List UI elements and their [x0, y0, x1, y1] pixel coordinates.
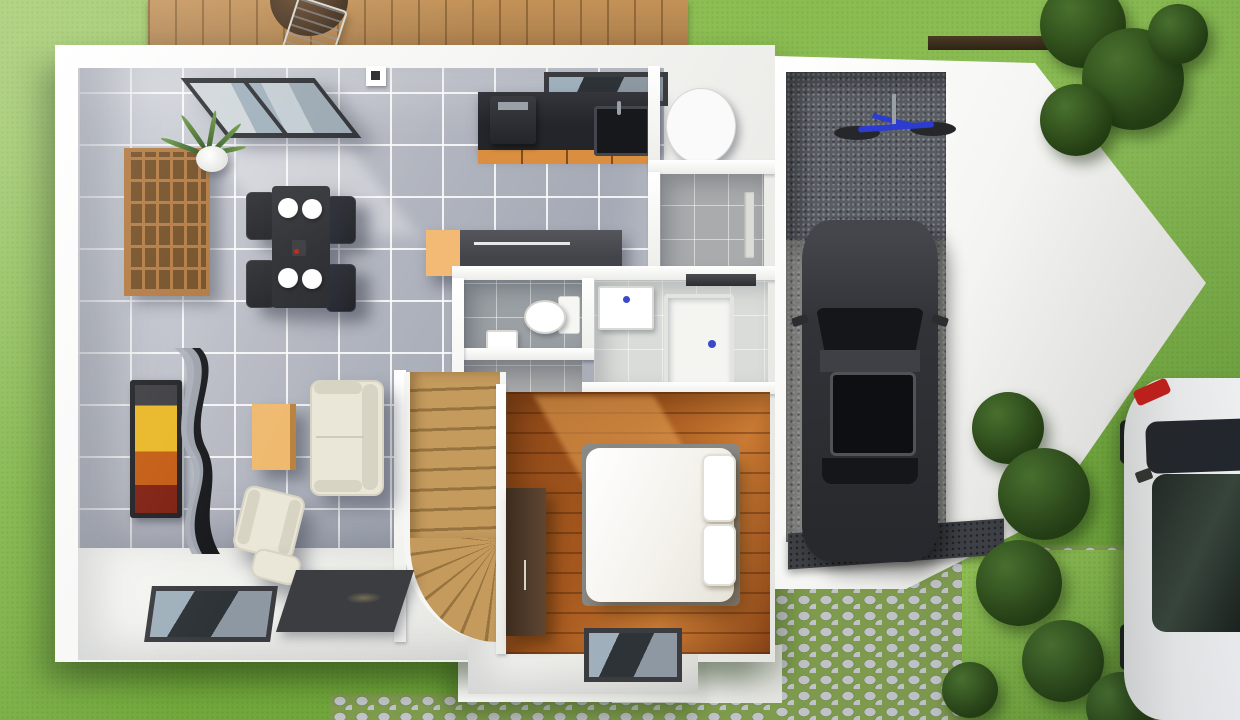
wardrobe-handle — [524, 560, 526, 590]
bicycle — [832, 100, 960, 146]
dark-car-rear-window — [822, 458, 918, 484]
dinner-plate — [278, 198, 298, 218]
white-car-roof-glass — [1152, 474, 1240, 632]
kitchen-sink — [594, 106, 650, 156]
dark-car-roof — [820, 350, 920, 372]
potted-plant — [176, 108, 236, 168]
sofa-armrest — [314, 382, 362, 394]
bathroom-niche — [686, 274, 756, 286]
bush — [1040, 84, 1112, 156]
staircase-straight-flight — [404, 372, 506, 542]
rug — [276, 570, 414, 632]
bush — [1148, 4, 1208, 64]
wall — [496, 384, 506, 654]
bed-pillow — [702, 454, 736, 522]
wall — [648, 66, 660, 170]
cube-shelf — [124, 148, 210, 296]
white-car-rear-window — [1145, 418, 1240, 474]
wall — [452, 348, 594, 360]
shower-tray — [664, 294, 734, 392]
floor-plan-render — [0, 0, 1240, 720]
dark-car — [802, 220, 938, 562]
bedroom-floor-window — [584, 628, 682, 682]
wardrobe — [506, 488, 546, 636]
table-centerpiece — [292, 240, 306, 256]
bed-pillow — [702, 524, 736, 586]
dinner-plate — [302, 269, 322, 289]
living-floor-window — [144, 586, 278, 642]
roof-window-mullion — [243, 83, 287, 133]
coffee-table — [252, 404, 296, 470]
wall — [648, 160, 775, 174]
dinner-plate — [302, 199, 322, 219]
roof-vent — [366, 66, 386, 86]
bicycle-stand — [892, 94, 896, 124]
dinner-plate — [278, 268, 298, 288]
bush — [998, 448, 1090, 540]
sofa-cushion-split — [316, 436, 364, 438]
plant-pot — [196, 146, 228, 172]
dining-chair — [326, 264, 356, 312]
dark-car-windshield — [816, 308, 924, 352]
water-heater — [666, 88, 736, 164]
kitchen-faucet — [617, 101, 621, 115]
washbasin — [598, 286, 654, 330]
island-handle — [474, 242, 570, 245]
dark-car-sunroof — [830, 372, 916, 456]
bush — [976, 540, 1062, 626]
coffee-machine-top — [498, 102, 528, 110]
sofa-armrest — [314, 480, 362, 492]
white-car — [1124, 378, 1240, 720]
dining-chair — [326, 196, 356, 244]
wooden-deck — [148, 0, 688, 46]
washbasin-tap — [623, 296, 630, 303]
wall — [648, 172, 660, 278]
coffee-machine — [490, 96, 536, 144]
toilet — [524, 300, 566, 334]
centerpiece-fruit — [294, 249, 299, 254]
sofa — [310, 380, 384, 496]
tv-stand — [164, 348, 226, 554]
shower-drain — [708, 340, 716, 348]
roof-vent-cap — [371, 71, 380, 80]
bush — [942, 662, 998, 718]
garage-interior-door — [744, 192, 754, 258]
sofa-backrest — [362, 384, 378, 490]
